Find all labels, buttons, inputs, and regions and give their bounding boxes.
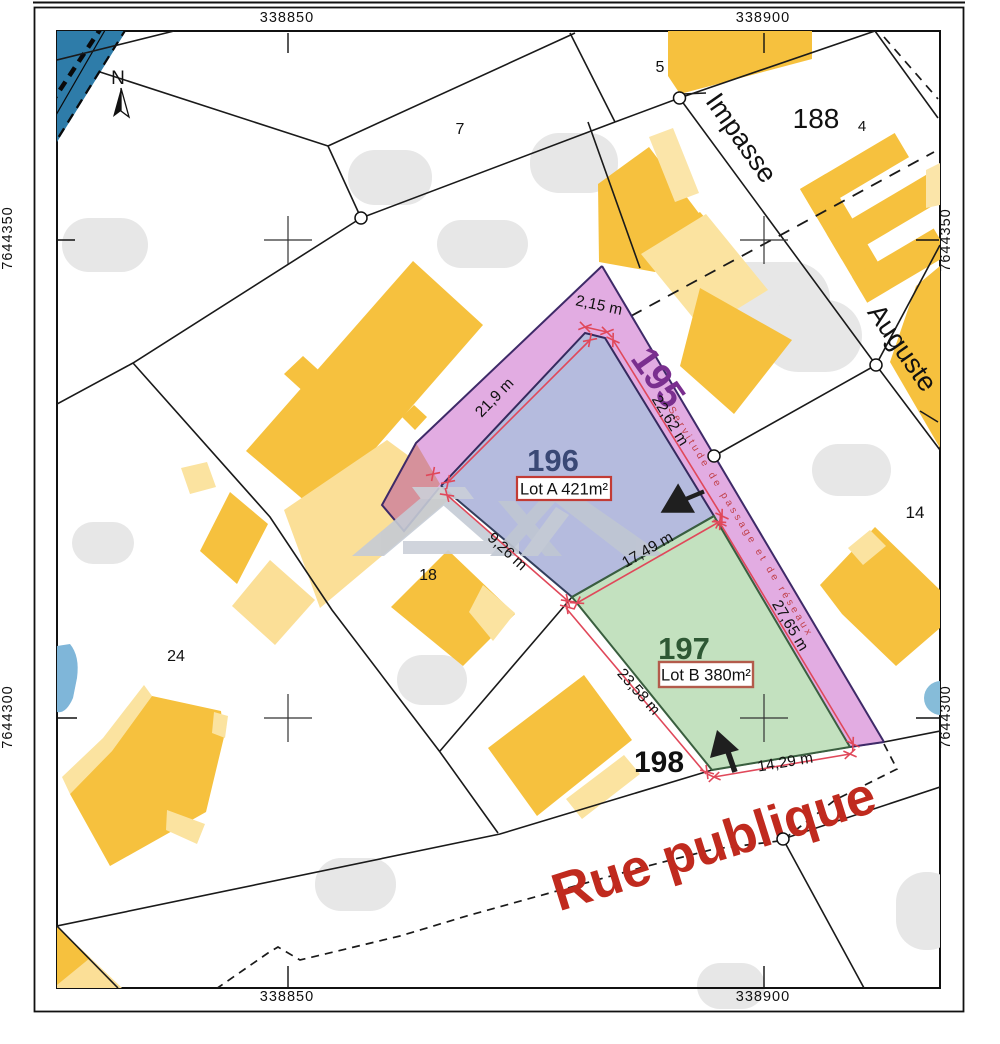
svg-text:7: 7 xyxy=(456,121,465,138)
svg-text:338850: 338850 xyxy=(260,10,314,26)
svg-text:338900: 338900 xyxy=(736,10,790,26)
svg-text:7644300: 7644300 xyxy=(938,685,954,748)
svg-text:338850: 338850 xyxy=(260,989,314,1005)
svg-text:7644350: 7644350 xyxy=(938,208,954,271)
svg-text:N: N xyxy=(111,68,125,89)
svg-text:196: 196 xyxy=(527,443,579,478)
svg-text:7644300: 7644300 xyxy=(0,685,16,748)
svg-text:197: 197 xyxy=(658,631,710,666)
svg-text:338900: 338900 xyxy=(736,989,790,1005)
svg-text:5: 5 xyxy=(656,59,665,76)
svg-text:188: 188 xyxy=(793,103,840,134)
svg-text:18: 18 xyxy=(419,567,437,584)
svg-text:7644350: 7644350 xyxy=(0,206,16,269)
svg-text:14: 14 xyxy=(906,503,925,522)
svg-text:24: 24 xyxy=(167,648,185,665)
svg-text:4: 4 xyxy=(858,118,866,135)
svg-text:198: 198 xyxy=(634,746,684,779)
svg-text:Lot B 380m²: Lot B 380m² xyxy=(661,667,751,685)
svg-text:Lot A 421m²: Lot A 421m² xyxy=(520,481,609,499)
